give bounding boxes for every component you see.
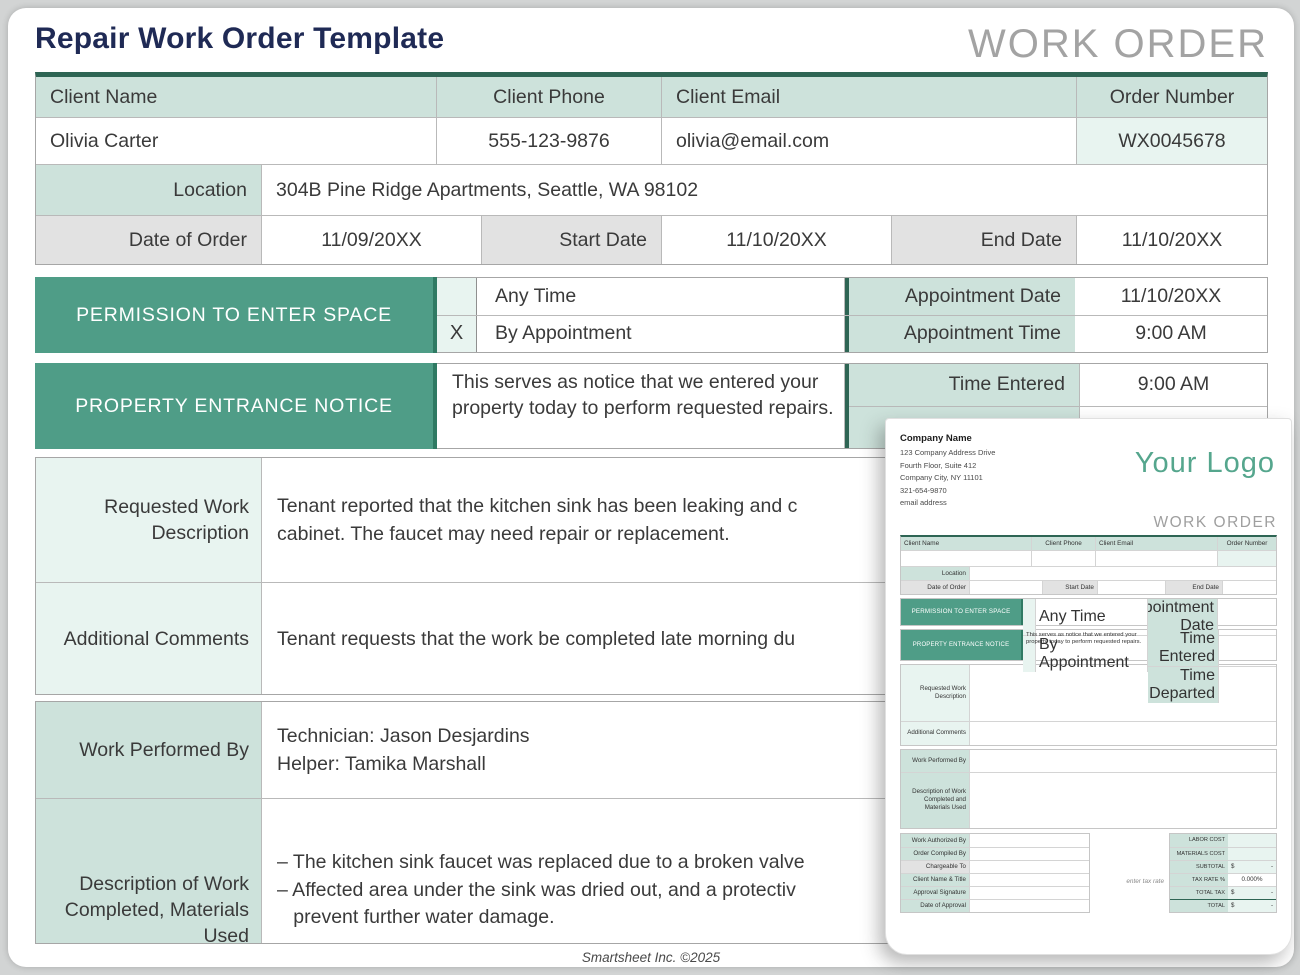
- screenshot-canvas: Repair Work Order Template WORK ORDER Cl…: [0, 0, 1300, 975]
- location-row: Location 304B Pine Ridge Apartments, Sea…: [36, 164, 1267, 215]
- preview-work-order-watermark: WORK ORDER: [900, 514, 1277, 532]
- preview-client-name-title-label: Client Name & Title: [901, 874, 969, 886]
- preview-order-number-header: Order Number: [1217, 537, 1276, 550]
- preview-work-authorized-label: Work Authorized By: [901, 834, 969, 847]
- preview-subtotal-label: SUBTOTAL: [1170, 861, 1228, 873]
- preview-work-performed-row: Work Performed By: [901, 750, 1276, 772]
- permission-section: PERMISSION TO ENTER SPACE Any Time Appoi…: [35, 277, 1268, 353]
- preview-labor-cost-value: [1228, 834, 1276, 847]
- preview-cost-row: TOTAL TAX $ -: [1170, 886, 1276, 899]
- preview-cost-row: LABOR COST: [1170, 834, 1276, 847]
- preview-location-value: [969, 567, 1276, 580]
- any-time-checkbox: [437, 278, 477, 315]
- permission-title: PERMISSION TO ENTER SPACE: [35, 277, 437, 353]
- preview-entrance-time-rows: Time Entered Time Departed: [1148, 630, 1276, 660]
- preview-cost-row: TOTAL $ -: [1170, 899, 1276, 912]
- preview-sign-row: Client Name & Title: [901, 873, 1089, 886]
- preview-address-line: Company City, NY 11101: [900, 472, 995, 485]
- preview-middle-gap: enter tax rate: [1090, 833, 1169, 913]
- preview-date-of-approval-label: Date of Approval: [901, 900, 969, 912]
- preview-time-entered-row: Time Entered: [1148, 630, 1276, 666]
- preview-location-row: Location: [901, 566, 1276, 580]
- preview-logo-placeholder: Your Logo: [1135, 447, 1275, 510]
- preview-chargeable-to-value: [969, 861, 1089, 873]
- preview-client-name-header: Client Name: [901, 537, 1031, 550]
- preview-end-date-label: End Date: [1165, 581, 1222, 594]
- appointment-date-label: Appointment Date: [845, 278, 1075, 315]
- appointment-time-value: 9:00 AM: [1075, 316, 1267, 353]
- preview-client-email-header: Client Email: [1095, 537, 1217, 550]
- preview-additional-comments-row: Additional Comments: [901, 721, 1276, 745]
- preview-work-description-value: [969, 773, 1276, 828]
- preview-time-entered-label: Time Entered: [1148, 630, 1218, 666]
- start-date-value: 11/10/20XX: [661, 216, 891, 264]
- end-date-value: 11/10/20XX: [1076, 216, 1267, 264]
- preview-work-performed-label: Work Performed By: [901, 750, 969, 772]
- preview-dates-row: Date of Order Start Date End Date: [901, 580, 1276, 594]
- preview-materials-cost-value: [1228, 848, 1276, 860]
- client-phone-header: Client Phone: [436, 77, 661, 117]
- order-number-header: Order Number: [1076, 77, 1267, 117]
- preview-sign-row: Order Compiled By: [901, 847, 1089, 860]
- preview-date-of-approval-value: [969, 900, 1089, 912]
- work-description-label: Description of Work Completed, Materials…: [36, 799, 261, 944]
- start-date-label: Start Date: [481, 216, 661, 264]
- preview-signature-table: Work Authorized By Order Compiled By Cha…: [900, 833, 1090, 913]
- time-entered-row: Time Entered 9:00 AM: [849, 364, 1267, 406]
- any-time-row: Any Time Appointment Date 11/10/20XX: [437, 278, 1267, 315]
- preview-total-label: TOTAL: [1170, 900, 1228, 912]
- preview-total-value: $ -: [1228, 900, 1276, 912]
- entrance-notice-text: This serves as notice that we entered yo…: [437, 364, 845, 448]
- additional-comments-label: Additional Comments: [36, 583, 261, 694]
- preview-permission-section: PERMISSION TO ENTER SPACE Any Time Appoi…: [900, 598, 1277, 626]
- work-performed-label: Work Performed By: [36, 702, 261, 798]
- order-number-value: WX0045678: [1076, 118, 1267, 164]
- preview-total-tax-label: TOTAL TAX: [1170, 887, 1228, 899]
- cost-amount: 0.000%: [1242, 876, 1263, 883]
- date-of-order-label: Date of Order: [36, 216, 261, 264]
- preview-approval-signature-label: Approval Signature: [901, 887, 969, 899]
- preview-tax-rate-label: TAX RATE %: [1170, 874, 1228, 886]
- client-phone-value: 555-123-9876: [436, 118, 661, 164]
- any-time-label: Any Time: [477, 278, 845, 315]
- preview-requested-work-row: Requested Work Description: [901, 665, 1276, 721]
- by-appointment-checkbox: X: [437, 316, 477, 353]
- preview-total-tax-value: $ -: [1228, 887, 1276, 899]
- preview-requested-work-value: [969, 665, 1276, 721]
- preview-requested-work-label: Requested Work Description: [901, 665, 969, 721]
- preview-order-compiled-label: Order Compiled By: [901, 848, 969, 860]
- preview-tax-rate-note: enter tax rate: [1126, 878, 1164, 885]
- preview-order-number-value: [1217, 551, 1276, 566]
- preview-permission-rows: Any Time Appointment Date By Appointment…: [1023, 599, 1276, 625]
- preview-tax-rate-value: 0.000%: [1228, 874, 1276, 886]
- preview-header: Company Name 123 Company Address Drive F…: [900, 433, 1277, 510]
- date-of-order-value: 11/09/20XX: [261, 216, 481, 264]
- preview-entrance-section: PROPERTY ENTRANCE NOTICE This serves as …: [900, 629, 1277, 661]
- work-order-watermark: WORK ORDER: [968, 24, 1268, 64]
- client-header-row: Client Name Client Phone Client Email Or…: [36, 77, 1267, 117]
- preview-client-name-title-value: [969, 874, 1089, 886]
- preview-bottom-section: Work Authorized By Order Compiled By Cha…: [900, 833, 1277, 913]
- entrance-notice-title: PROPERTY ENTRANCE NOTICE: [35, 363, 437, 449]
- preview-start-date-value: [1097, 581, 1165, 594]
- preview-client-value-row: [901, 550, 1276, 566]
- preview-sign-row: Work Authorized By: [901, 834, 1089, 847]
- client-info-table: Client Name Client Phone Client Email Or…: [35, 72, 1268, 265]
- appointment-date-value: 11/10/20XX: [1075, 278, 1267, 315]
- preview-additional-comments-value: [969, 722, 1276, 745]
- client-name-value: Olivia Carter: [36, 118, 436, 164]
- preview-time-entered-value: [1218, 630, 1276, 666]
- page-title: Repair Work Order Template: [35, 22, 444, 56]
- preview-work-performed-group: Work Performed By Description of Work Co…: [900, 749, 1277, 829]
- preview-work-performed-value: [969, 750, 1276, 772]
- preview-client-phone-header: Client Phone: [1031, 537, 1095, 550]
- cost-prefix: $: [1231, 863, 1234, 870]
- end-date-label: End Date: [891, 216, 1076, 264]
- requested-work-label: Requested Work Description: [36, 458, 261, 582]
- preview-entrance-notice-text: This serves as notice that we entered yo…: [1023, 630, 1148, 660]
- preview-client-name-value: [901, 551, 1031, 566]
- permission-rows: Any Time Appointment Date 11/10/20XX X B…: [437, 277, 1268, 353]
- cost-amount: -: [1271, 889, 1273, 896]
- preview-client-table: Client Name Client Phone Client Email Or…: [900, 535, 1277, 595]
- preview-sign-row: Date of Approval: [901, 899, 1089, 912]
- by-appointment-row: X By Appointment Appointment Time 9:00 A…: [437, 315, 1267, 353]
- template-preview-card: Company Name 123 Company Address Drive F…: [885, 418, 1292, 955]
- preview-client-email-value: [1095, 551, 1217, 566]
- preview-entrance-title: PROPERTY ENTRANCE NOTICE: [901, 630, 1023, 660]
- preview-cost-row: SUBTOTAL $ -: [1170, 860, 1276, 873]
- preview-materials-cost-label: MATERIALS COST: [1170, 848, 1228, 860]
- cost-amount: -: [1271, 902, 1273, 909]
- cost-amount: -: [1271, 863, 1273, 870]
- location-value: 304B Pine Ridge Apartments, Seattle, WA …: [261, 165, 1267, 215]
- preview-date-of-order-value: [969, 581, 1042, 594]
- preview-company-name: Company Name: [900, 433, 995, 444]
- document-header: Repair Work Order Template WORK ORDER: [35, 22, 1268, 68]
- cost-prefix: $: [1231, 902, 1234, 909]
- preview-address-line: 123 Company Address Drive: [900, 447, 995, 460]
- preview-chargeable-to-label: Chargeable To: [901, 861, 969, 873]
- preview-cost-table: LABOR COST MATERIALS COST SUBTOTAL: [1169, 833, 1277, 913]
- client-value-row: Olivia Carter 555-123-9876 olivia@email.…: [36, 117, 1267, 164]
- time-entered-label: Time Entered: [849, 364, 1079, 406]
- client-email-header: Client Email: [661, 77, 1076, 117]
- preview-order-compiled-value: [969, 848, 1089, 860]
- preview-sign-row: Approval Signature: [901, 886, 1089, 899]
- preview-work-description-row: Description of Work Completed and Materi…: [901, 772, 1276, 828]
- client-name-header: Client Name: [36, 77, 436, 117]
- preview-client-phone-value: [1031, 551, 1095, 566]
- preview-company-block: Company Name 123 Company Address Drive F…: [900, 433, 995, 510]
- preview-end-date-value: [1222, 581, 1276, 594]
- preview-address-line: email address: [900, 497, 995, 510]
- preview-work-request-group: Requested Work Description Additional Co…: [900, 664, 1277, 746]
- preview-additional-comments-label: Additional Comments: [901, 722, 969, 745]
- preview-client-header-row: Client Name Client Phone Client Email Or…: [901, 537, 1276, 550]
- preview-approval-signature-value: [969, 887, 1089, 899]
- preview-cost-row: MATERIALS COST: [1170, 847, 1276, 860]
- location-label: Location: [36, 165, 261, 215]
- preview-labor-cost-label: LABOR COST: [1170, 834, 1228, 847]
- cost-prefix: $: [1231, 889, 1234, 896]
- preview-address-line: 321-654-9870: [900, 485, 995, 498]
- preview-address-line: Fourth Floor, Suite 412: [900, 460, 995, 473]
- preview-subtotal-value: $ -: [1228, 861, 1276, 873]
- preview-start-date-label: Start Date: [1042, 581, 1097, 594]
- preview-permission-title: PERMISSION TO ENTER SPACE: [901, 599, 1023, 625]
- by-appointment-label: By Appointment: [477, 316, 845, 353]
- preview-date-of-order-label: Date of Order: [901, 581, 969, 594]
- preview-cost-row: TAX RATE % 0.000%: [1170, 873, 1276, 886]
- time-entered-value: 9:00 AM: [1079, 364, 1267, 406]
- appointment-time-label: Appointment Time: [845, 316, 1075, 353]
- preview-work-authorized-value: [969, 834, 1089, 847]
- client-email-value: olivia@email.com: [661, 118, 1076, 164]
- preview-sign-row: Chargeable To: [901, 860, 1089, 873]
- preview-work-description-label: Description of Work Completed and Materi…: [901, 773, 969, 828]
- preview-location-label: Location: [901, 567, 969, 580]
- dates-row: Date of Order 11/09/20XX Start Date 11/1…: [36, 215, 1267, 264]
